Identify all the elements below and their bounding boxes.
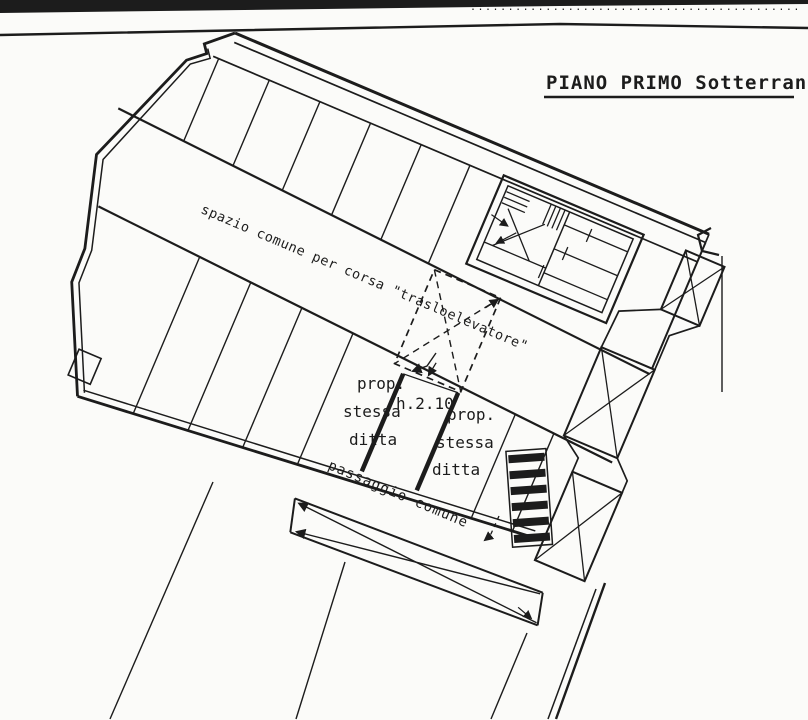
passage-height-label: h.2.10 (396, 394, 454, 413)
scan-border: ........................................… (0, 0, 808, 35)
lift-path-arrow-up (486, 297, 498, 311)
left-unit-stessa: stessa (343, 402, 401, 421)
sheet-edge-line (0, 24, 808, 35)
building-plan: spazio comune per corsa "trasloelevatore… (0, 2, 734, 648)
lower-area-lines (110, 482, 605, 719)
drawing-title-block: PIANO PRIMO Sotterraneo (544, 72, 808, 97)
north-wall (213, 29, 709, 262)
right-unit-ditta: ditta (432, 460, 480, 479)
shaft-middle (564, 347, 655, 458)
scanned-floor-plan-sheet: ........................................… (0, 0, 808, 720)
left-unit-ditta: ditta (349, 430, 397, 449)
stair-landing-line (484, 242, 546, 268)
left-unit-prop: prop. (357, 374, 405, 393)
southeast-wall-inner (548, 589, 596, 719)
floor-plan-svg: ........................................… (0, 0, 808, 720)
stair-lower-treads (538, 217, 630, 306)
staircase-block (466, 175, 643, 323)
right-unit-stessa: stessa (436, 433, 494, 452)
southeast-wall-outer (556, 583, 605, 719)
page-title: PIANO PRIMO Sotterraneo (546, 72, 808, 94)
corridor-label: spazio comune per corsa "trasloelevatore… (198, 202, 530, 355)
shaft-north (661, 250, 725, 325)
stair-upper-treads (502, 192, 530, 213)
west-wall (7, 2, 239, 399)
west-wall-notch (68, 349, 101, 384)
elevator-cross (492, 209, 544, 261)
right-unit-prop: prop. (447, 405, 495, 424)
east-wing (515, 221, 731, 584)
